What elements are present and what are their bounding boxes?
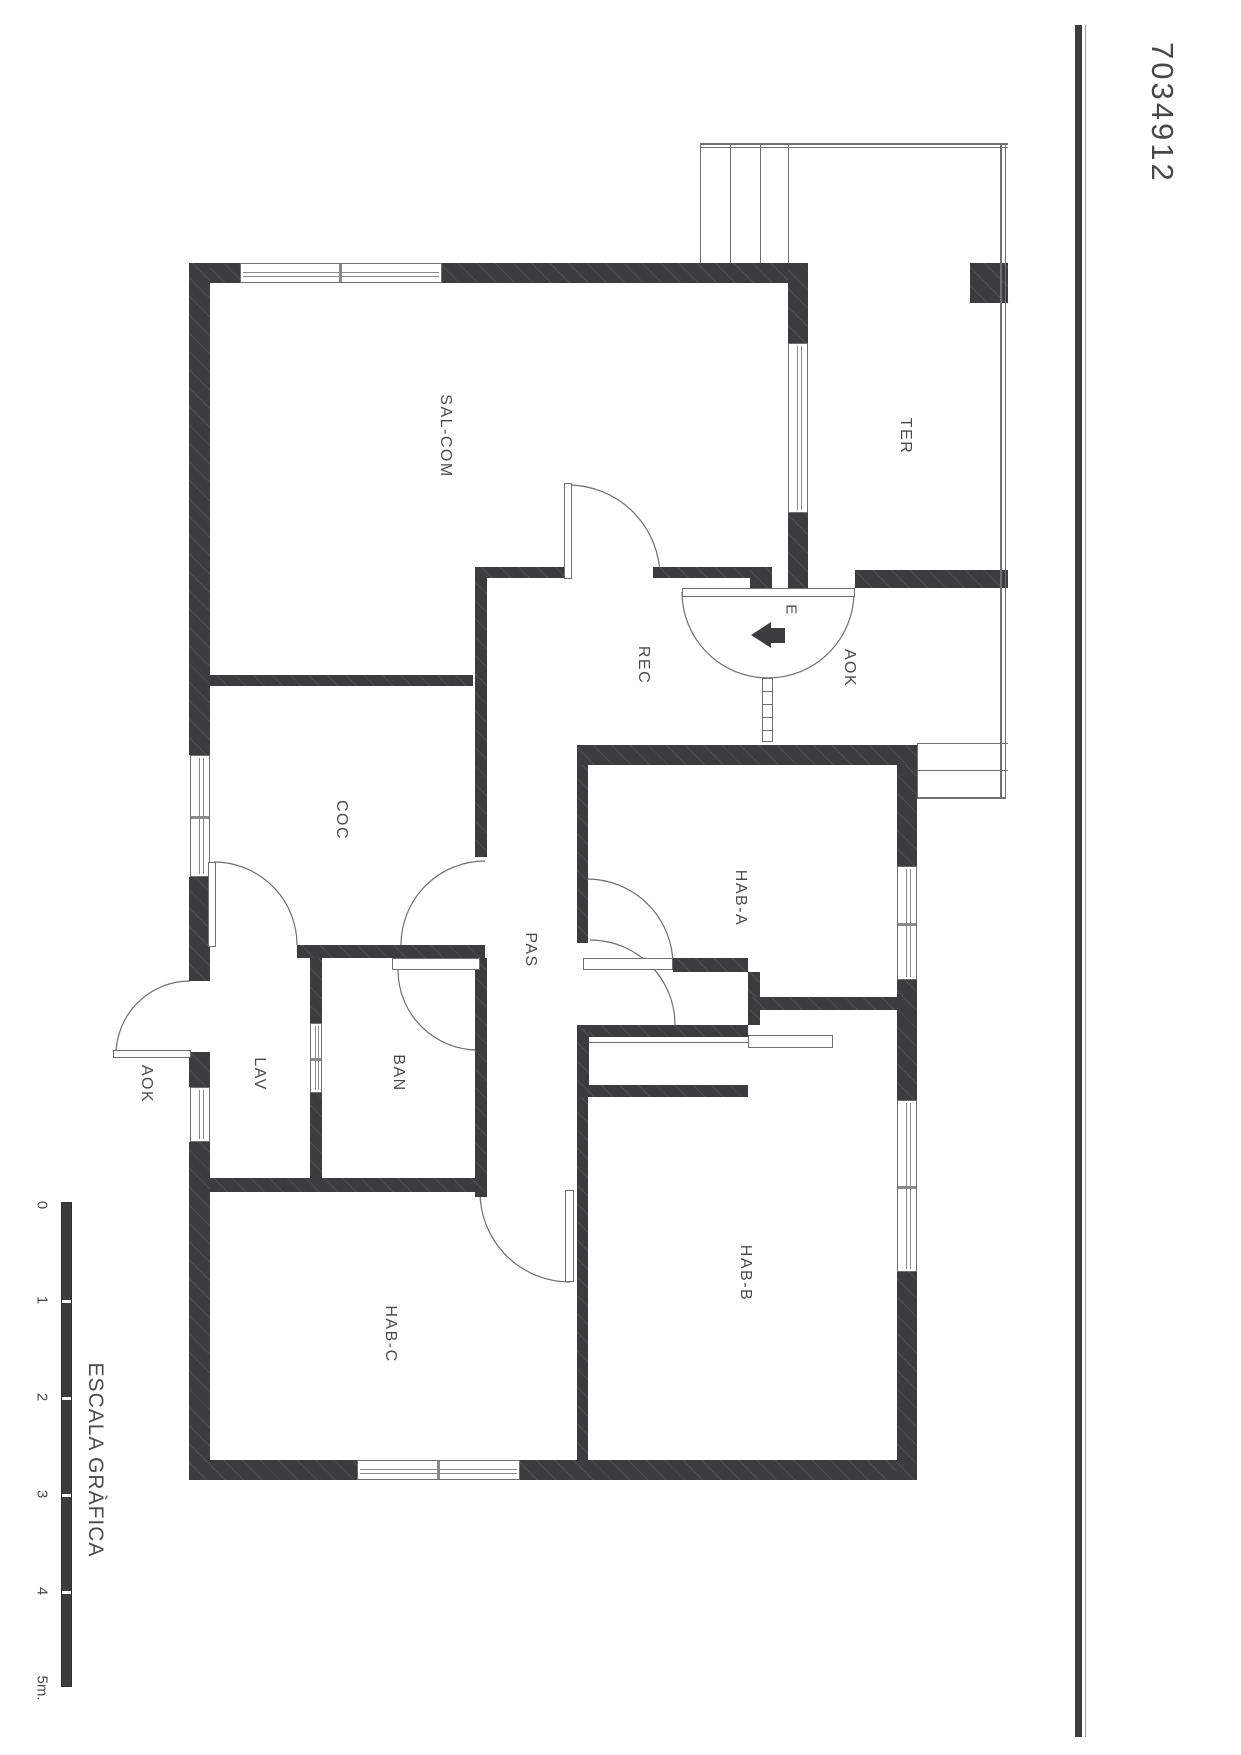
door-leaf-frame bbox=[583, 958, 673, 970]
wall-segment bbox=[897, 980, 917, 1100]
scale-tick-0: 0 bbox=[34, 1201, 51, 1209]
window bbox=[897, 1100, 917, 1272]
room-label-hab-c: HAB-C bbox=[381, 1305, 399, 1362]
wall-segment bbox=[442, 263, 808, 283]
window-mullion bbox=[311, 1058, 321, 1061]
wall-segment bbox=[310, 958, 322, 1023]
window-mullion bbox=[339, 264, 342, 282]
thin-plan-line bbox=[700, 143, 701, 263]
wall-segment bbox=[189, 263, 210, 755]
door-leaf-frame bbox=[392, 958, 480, 970]
entrance-arrow-tail bbox=[771, 628, 785, 643]
thin-plan-line bbox=[763, 717, 772, 718]
window-glass-line bbox=[199, 1090, 200, 1139]
room-label-lav: LAV bbox=[250, 1057, 268, 1091]
thin-plan-line bbox=[1000, 143, 1002, 797]
room-label-hab-b: HAB-B bbox=[736, 1245, 754, 1301]
thin-plan-line bbox=[700, 147, 1008, 148]
scale-meter-separator bbox=[62, 1494, 71, 1497]
wall-segment bbox=[189, 1052, 210, 1087]
door-leaf-frame bbox=[565, 1190, 574, 1282]
wall-segment bbox=[189, 1460, 357, 1480]
door-swing-arc bbox=[398, 970, 478, 1050]
wall-segment bbox=[673, 958, 748, 972]
room-label-aok-entry: AOK bbox=[840, 649, 858, 687]
window-mullion bbox=[898, 1186, 916, 1189]
door-leaf-frame bbox=[682, 588, 855, 597]
entrance-arrow-icon bbox=[751, 622, 771, 648]
thin-plan-line bbox=[700, 143, 1008, 145]
door-leaf-frame bbox=[113, 1050, 191, 1058]
thin-plan-line bbox=[763, 730, 772, 731]
window-glass-line bbox=[203, 1090, 204, 1139]
wall-segment bbox=[897, 1272, 917, 1480]
window-mullion bbox=[437, 1461, 440, 1479]
room-label-rec: REC bbox=[634, 646, 652, 684]
room-label-hab-a: HAB-A bbox=[731, 870, 749, 926]
window bbox=[310, 1023, 322, 1093]
scale-tick-4: 4 bbox=[34, 1587, 51, 1595]
door-leaf-frame bbox=[762, 678, 773, 742]
door-swing-arc bbox=[480, 1192, 570, 1282]
window-glass-line bbox=[801, 346, 802, 510]
room-label-entrance: E bbox=[783, 604, 800, 616]
thin-plan-line bbox=[1005, 143, 1006, 797]
room-label-ter: TER bbox=[896, 418, 914, 455]
wall-segment bbox=[748, 997, 898, 1010]
wall-segment bbox=[189, 1142, 210, 1480]
window bbox=[897, 866, 917, 980]
thin-plan-line bbox=[788, 143, 789, 263]
room-label-ban: BAN bbox=[389, 1054, 407, 1091]
wall-segment bbox=[310, 1093, 322, 1178]
wall-segment bbox=[520, 1460, 917, 1480]
wall-segment bbox=[750, 567, 772, 588]
window-mullion bbox=[191, 816, 209, 819]
window bbox=[240, 263, 442, 283]
door-swing-arc bbox=[590, 940, 675, 1025]
thin-plan-line bbox=[917, 770, 1008, 771]
window bbox=[190, 1087, 210, 1142]
scale-meter-separator bbox=[62, 1591, 71, 1594]
window-mullion bbox=[898, 923, 916, 926]
wall-segment bbox=[475, 958, 487, 1197]
room-label-sal-com: SAL-COM bbox=[436, 394, 454, 477]
window-glass-line bbox=[797, 346, 798, 510]
wall-segment bbox=[855, 570, 1008, 588]
thin-plan-line bbox=[917, 743, 918, 799]
scale-meter-separator bbox=[62, 1300, 71, 1303]
door-leaf-frame bbox=[208, 862, 216, 947]
wall-segment bbox=[577, 1025, 748, 1037]
graphic-scale-bar bbox=[61, 1202, 72, 1687]
wall-segment bbox=[475, 567, 565, 578]
wall-segment bbox=[577, 1085, 748, 1097]
room-label-coc: COC bbox=[332, 800, 350, 840]
wall-segment bbox=[577, 1097, 588, 1460]
thin-plan-line bbox=[763, 704, 772, 705]
window bbox=[788, 343, 808, 513]
scale-tick-3: 3 bbox=[34, 1490, 51, 1498]
thin-plan-line bbox=[763, 691, 772, 692]
thin-plan-line bbox=[917, 743, 1008, 744]
scale-meter-separator bbox=[62, 1397, 71, 1400]
room-label-aok-side: AOK bbox=[137, 1065, 155, 1103]
door-swing-arc bbox=[401, 861, 485, 945]
scale-tick-5m: 5m. bbox=[34, 1675, 51, 1700]
wall-segment bbox=[210, 675, 473, 686]
wall-segment bbox=[475, 567, 487, 857]
wall-segment bbox=[577, 765, 588, 943]
wall-segment bbox=[210, 1178, 487, 1192]
thin-plan-line bbox=[589, 1042, 748, 1043]
scale-tick-2: 2 bbox=[34, 1393, 51, 1401]
door-swing-arc bbox=[214, 862, 297, 945]
thin-plan-line bbox=[760, 143, 761, 263]
wall-segment bbox=[653, 567, 752, 578]
wall-segment bbox=[788, 263, 808, 343]
room-label-pas: PAS bbox=[521, 932, 539, 967]
door-swing-arc bbox=[587, 879, 673, 965]
thin-plan-line bbox=[730, 143, 731, 263]
window bbox=[190, 755, 210, 877]
wall-segment bbox=[970, 263, 1008, 303]
thin-plan-line bbox=[917, 797, 1006, 799]
wall-segment bbox=[189, 877, 210, 981]
scale-title: ESCALA GRÀFICA bbox=[83, 1363, 107, 1558]
wall-segment bbox=[788, 513, 808, 588]
floorplan-page: 7034912 ESCALA GRÀFICA SAL-COMTERRECAOKE… bbox=[0, 0, 1241, 1755]
door-swing-arc bbox=[568, 485, 660, 577]
door-leaf-frame bbox=[748, 1035, 833, 1048]
wall-segment bbox=[297, 945, 485, 958]
door-leaf-frame bbox=[564, 483, 572, 579]
wall-segment bbox=[577, 745, 917, 765]
window bbox=[357, 1460, 520, 1480]
scale-tick-1: 1 bbox=[34, 1296, 51, 1304]
door-swing-arc bbox=[116, 981, 190, 1055]
